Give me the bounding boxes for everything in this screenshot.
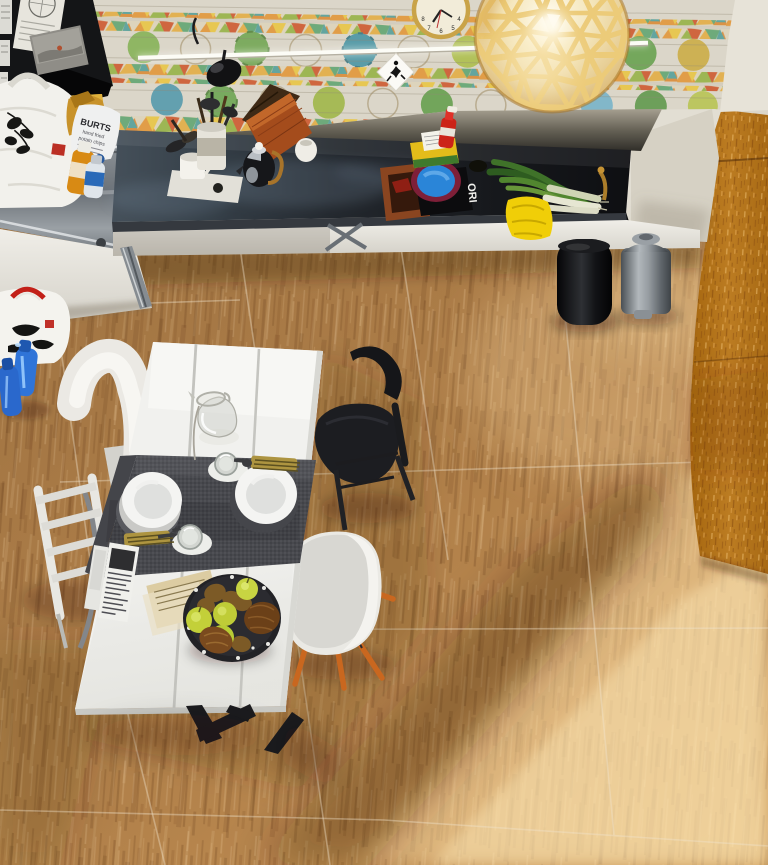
svg-text:ORI: ORI	[465, 183, 479, 204]
